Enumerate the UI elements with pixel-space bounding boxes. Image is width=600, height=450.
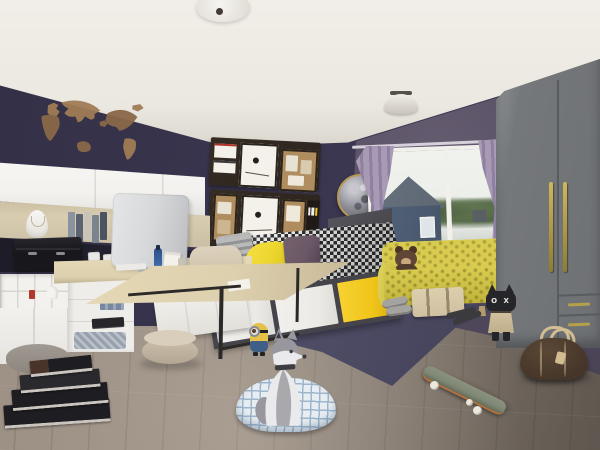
bell-jar xyxy=(47,286,58,299)
cork-panel-1 xyxy=(279,149,318,193)
book-spine xyxy=(68,212,75,240)
book-spine xyxy=(315,208,318,216)
pinned-paper xyxy=(288,175,305,186)
map-line xyxy=(245,172,269,177)
book-spine xyxy=(308,207,311,215)
book-spine xyxy=(311,208,314,216)
woven-basket xyxy=(74,332,126,349)
bedroom-render: NEW YORK xyxy=(0,0,600,450)
lamp-finial xyxy=(216,8,223,15)
chest-lid-line xyxy=(16,248,80,250)
distant-house xyxy=(473,210,487,222)
book-spine xyxy=(84,212,91,240)
minion-foot xyxy=(260,352,265,356)
pinned-photo xyxy=(217,220,231,235)
wardrobe-door-seam xyxy=(557,80,559,340)
map-panel-1 xyxy=(239,143,279,189)
minion-pupil xyxy=(252,329,256,333)
pinned-paper xyxy=(217,202,232,215)
cat-leg xyxy=(492,332,499,341)
cat-plush: O X xyxy=(484,284,518,342)
map-line xyxy=(246,229,272,231)
ink-splat xyxy=(253,157,259,163)
poster-small-1 xyxy=(214,143,237,158)
house-window xyxy=(420,217,435,239)
book-spine xyxy=(100,212,107,240)
duffel-bag xyxy=(520,338,588,380)
pinned-paper xyxy=(300,160,312,175)
red-figurine xyxy=(29,290,35,299)
chest-handle xyxy=(56,252,65,255)
cat-leg xyxy=(503,332,510,341)
purple-cushion xyxy=(283,234,321,267)
duffel-seam xyxy=(540,341,542,377)
pouf-top xyxy=(144,330,196,346)
wardrobe-handle xyxy=(563,182,567,272)
ceiling-lamp-small xyxy=(384,94,418,114)
chest-handle xyxy=(28,252,37,255)
wardrobe-handle xyxy=(549,182,553,272)
cat-cape xyxy=(488,311,514,333)
skateboard-wheel xyxy=(466,399,473,406)
world-map-decal xyxy=(18,91,173,173)
bottle-cap xyxy=(156,245,160,250)
skateboard-wheel xyxy=(430,381,439,390)
pinned-paper xyxy=(285,155,298,172)
minion-foot xyxy=(253,352,258,356)
ink-splat xyxy=(255,212,261,218)
poster-small-2 xyxy=(213,160,236,173)
cat-face: O X xyxy=(486,291,516,312)
small-box xyxy=(88,252,100,262)
skateboard-wheel xyxy=(473,406,482,415)
pinned-paper xyxy=(286,205,301,222)
minion-overalls xyxy=(250,341,268,352)
book-spine xyxy=(92,215,99,243)
water-bottle xyxy=(154,248,162,268)
minion-figure xyxy=(246,321,272,363)
